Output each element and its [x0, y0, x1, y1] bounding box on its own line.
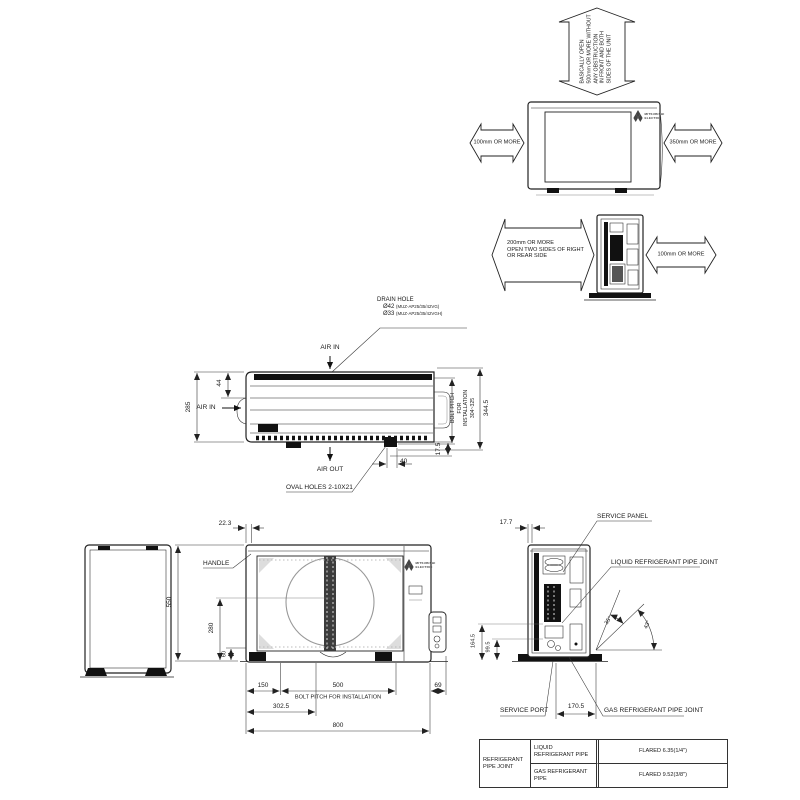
handle-label: HANDLE	[203, 560, 229, 568]
dim-foot-offset-40: 40	[400, 458, 407, 466]
brand-line2: ELECTRIC	[416, 566, 436, 570]
dim-joint-offset-170-5: 170.5	[568, 703, 584, 711]
dim-fan-center-280: 280	[208, 623, 216, 634]
dim-base-height-60: 60	[222, 651, 229, 657]
drain-hole-label: DRAIN HOLE Ø42 (MUZ-AP25/35/42VG) Ø33 (M…	[377, 297, 442, 319]
dim-bolt-pitch-500: 500	[333, 682, 344, 690]
dim-overall-depth-344-5: 344.5	[483, 400, 491, 416]
side-clearance-right-label: 100mm OR MORE	[658, 252, 705, 259]
dim-handle-offset-22-3: 22.3	[219, 520, 232, 528]
dim-liquid-height-164-5: 164.5	[471, 634, 478, 648]
mitsubishi-logo: MITSUBISHIELECTRIC	[633, 110, 664, 123]
mitsubishi-logo: MITSUBISHIELECTRIC	[404, 559, 435, 572]
table-rowgroup-label: REFRIGERANT PIPE JOINT	[480, 740, 530, 787]
gas-joint-label: GAS REFRIGERANT PIPE JOINT	[604, 707, 703, 715]
table-cell-liquid-pipe: LIQUID REFRIGERANT PIPE	[530, 740, 596, 763]
dim-back-offset-44: 44	[216, 379, 224, 386]
table-cell-liquid-flare: FLARED 6.35(1/4")	[596, 740, 727, 763]
diagram-linework	[0, 0, 800, 800]
dim-left-foot-150: 150	[258, 682, 269, 690]
dim-height-550: 550	[166, 597, 174, 608]
service-panel-label: SERVICE PANEL	[597, 513, 648, 521]
dim-drain-pos-302-5: 302.5	[273, 703, 289, 711]
service-port-label: SERVICE PORT	[500, 707, 548, 715]
bolt-pitch-top-view: BOLT PITCH FOR INSTALLATION 304~325	[450, 372, 476, 444]
air-in-top-label: AIR IN	[320, 344, 339, 352]
table-cell-gas-flare: FLARED 9.52(3/8")	[596, 763, 727, 787]
dim-right-offset-69: 69	[434, 682, 441, 690]
dim-width-800: 800	[333, 722, 344, 730]
dim-depth-285: 285	[185, 402, 193, 413]
left-clearance-label: 100mm OR MORE	[474, 140, 521, 147]
outdoor-unit-installation-drawing: MITSUBISHIELECTRIC MITSUBISHIELECTRIC BA…	[0, 0, 800, 800]
brand-line2: ELECTRIC	[645, 117, 665, 121]
table-cell-gas-pipe: GAS REFRIGERANT PIPE	[530, 763, 596, 787]
dim-top-offset-17-7: 17.7	[500, 519, 513, 527]
air-out-label: AIR OUT	[317, 466, 343, 474]
dim-foot-inset-17-5: 17.5	[435, 443, 443, 456]
air-in-left-label: AIR IN	[196, 404, 215, 412]
top-clearance-arrow-text: BASICALLY OPEN 500mm OR MORE WITHOUT ANY…	[561, 12, 633, 86]
bolt-pitch-label-front: BOLT PITCH FOR INSTALLATION	[295, 695, 381, 702]
right-clearance-label: 350mm OR MORE	[670, 140, 717, 147]
oval-holes-label: OVAL HOLES 2-10X21	[286, 484, 353, 492]
mitsubishi-diamond-icon	[633, 110, 643, 123]
mitsubishi-diamond-icon	[404, 559, 414, 572]
dim-gas-height-99-5: 99.5	[486, 642, 493, 653]
liquid-joint-label: LIQUID REFRIGERANT PIPE JOINT	[611, 559, 718, 567]
side-clearance-left-label: 200mm OR MORE OPEN TWO SIDES OF RIGHT OR…	[507, 240, 584, 260]
refrigerant-pipe-table: REFRIGERANT PIPE JOINT LIQUID REFRIGERAN…	[479, 739, 728, 788]
